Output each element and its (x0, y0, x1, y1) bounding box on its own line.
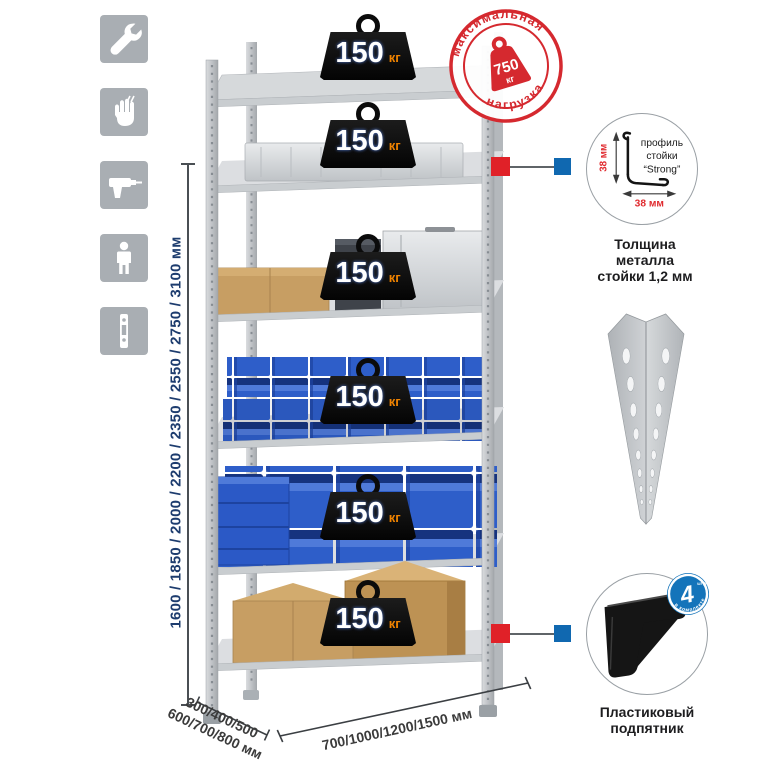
load-unit: кг (389, 394, 401, 409)
connector-red-marker-top (491, 157, 510, 176)
width-dimension-label: 700/1000/1200/1500 мм (320, 705, 473, 753)
load-value: 150 (335, 499, 383, 528)
height-dimension-line (187, 163, 189, 706)
profile-label-line2: стойки (646, 151, 677, 162)
drill-icon-box (100, 161, 148, 209)
upright-post-image (598, 308, 694, 532)
load-value: 150 (335, 605, 383, 634)
profile-detail-circle: 38 мм 38 мм профиль стойки “Strong” (586, 113, 698, 225)
plastic-foot-caption-line2: подпятник (587, 720, 707, 736)
load-value: 150 (335, 383, 383, 412)
load-badge-shelf-3: 150кг (320, 234, 416, 300)
kit-count-badge: 4 штуки в комплекте (666, 572, 710, 616)
level-icon-box (100, 307, 148, 355)
load-badge-shelf-2: 150кг (320, 102, 416, 168)
load-unit: кг (389, 270, 401, 285)
load-badge-shelf-6: 150кг (320, 580, 416, 646)
profile-dim-vertical: 38 мм (598, 144, 609, 172)
load-unit: кг (389, 510, 401, 525)
height-dimension-label: 1600 / 1850 / 2000 / 2200 / 2350 / 2550 … (168, 153, 185, 713)
profile-caption-line2: стойки 1,2 мм (585, 268, 705, 284)
plastic-foot-caption: Пластиковый подпятник (587, 704, 707, 736)
load-badge-shelf-5: 150кг (320, 474, 416, 540)
gloves-icon (100, 88, 148, 136)
max-load-stamp: максимальная нагрузка 750 кг (442, 2, 570, 130)
load-value: 150 (335, 127, 383, 156)
load-unit: кг (389, 138, 401, 153)
connector-blue-marker-bottom (554, 625, 571, 642)
drill-icon (100, 161, 148, 209)
load-value: 150 (335, 259, 383, 288)
infographic-canvas: 1600 / 1850 / 2000 / 2200 / 2350 / 2550 … (0, 0, 765, 765)
wrench-icon-box (100, 15, 148, 63)
load-badge-shelf-1: 150кг (320, 14, 416, 80)
cardboard-box (211, 268, 329, 316)
level-icon (100, 307, 148, 355)
connector-line-bottom (510, 633, 556, 635)
connector-blue-marker-top (554, 158, 571, 175)
person-icon-box (100, 234, 148, 282)
profile-label-line3: “Strong” (644, 164, 681, 175)
profile-dim-horizontal: 38 мм (635, 198, 664, 209)
connector-red-marker-bottom (491, 624, 510, 643)
connector-line-top (510, 166, 556, 168)
load-unit: кг (389, 50, 401, 65)
person-icon (100, 234, 148, 282)
profile-caption-line1: Толщина металла (585, 236, 705, 268)
profile-label-line1: профиль (641, 137, 683, 149)
profile-caption: Толщина металла стойки 1,2 мм (585, 236, 705, 284)
load-value: 150 (335, 39, 383, 68)
blue-crate (207, 477, 289, 565)
load-unit: кг (389, 616, 401, 631)
kit-count-unit: штуки (697, 580, 710, 585)
bottom-dimensions: 300/400/500 600/700/800 мм 700/1000/1200… (140, 672, 570, 765)
plastic-foot-caption-line1: Пластиковый (587, 704, 707, 720)
wrench-icon (100, 15, 148, 63)
load-badge-shelf-4: 150кг (320, 358, 416, 424)
profile-cross-section-diagram: 38 мм 38 мм профиль стойки “Strong” (587, 114, 696, 223)
gloves-icon-box (100, 88, 148, 136)
